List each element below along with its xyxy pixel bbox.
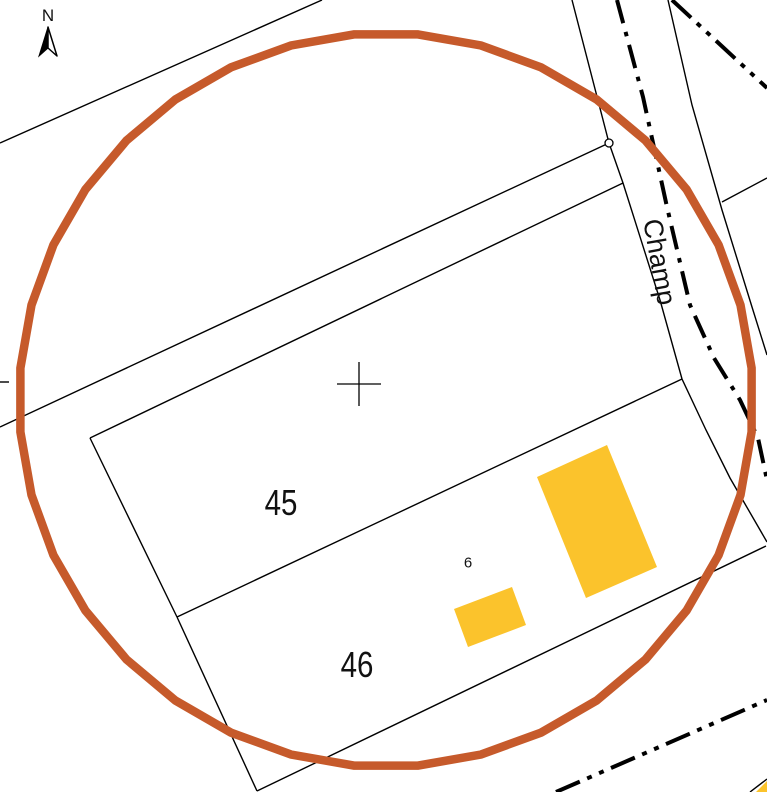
north-arrow-icon: [26, 26, 70, 60]
parcel45-north-edge: [90, 183, 623, 438]
boundary-marker: [605, 139, 613, 147]
building-small: [454, 587, 526, 647]
parcel-46-label: 46: [341, 644, 374, 686]
north-indicator: N: [26, 6, 70, 60]
parcel45-west-edge: [90, 438, 177, 617]
road-axis-topright: [672, 0, 767, 88]
building-large: [537, 445, 657, 598]
cadastral-map-viewport[interactable]: N 45 46 6 Champ: [0, 0, 767, 792]
road-axis-bottomright: [556, 700, 767, 792]
road-east-edge: [668, 0, 767, 355]
parcel46-south-edge: [257, 546, 766, 791]
east-boundary-stub: [722, 178, 767, 202]
selection-circle: [20, 34, 751, 765]
map-svg: [0, 0, 767, 792]
building-6-label: 6: [464, 555, 472, 572]
north-label: N: [42, 6, 54, 26]
parcel-45-label: 45: [265, 482, 298, 524]
